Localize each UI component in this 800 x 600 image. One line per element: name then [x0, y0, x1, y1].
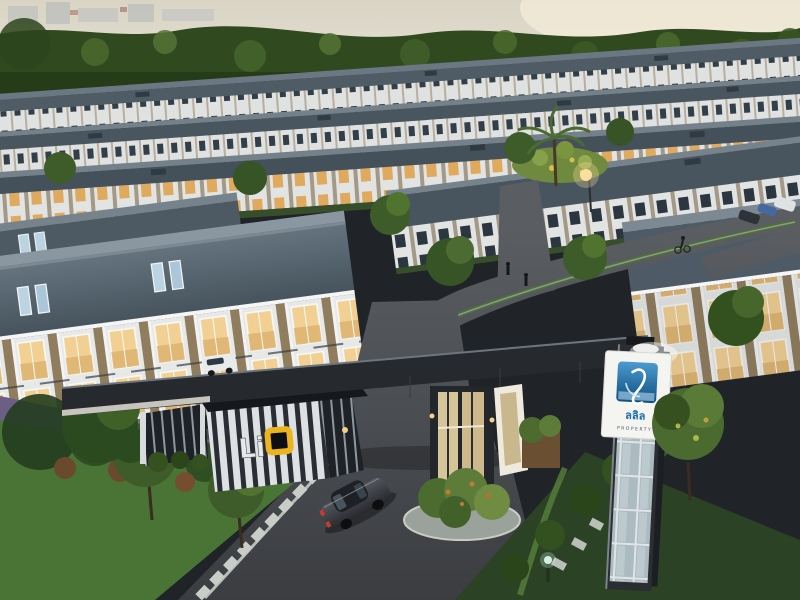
- pillar-lamp: [490, 418, 495, 423]
- rendering-canvas: Li: [0, 0, 800, 600]
- pylon-glass-panels: [610, 431, 656, 583]
- pylon-logo-text: ลลิล: [625, 409, 646, 423]
- red-shrub: [175, 472, 195, 492]
- red-shrub: [54, 457, 76, 479]
- lio-o-mark-icon: [267, 429, 291, 453]
- lio-brand-text: Li: [237, 432, 266, 465]
- village-rendering: Li: [0, 0, 800, 600]
- guardhouse-lamp: [342, 427, 348, 433]
- pillar-lamp: [430, 414, 435, 419]
- gate-side-wall: [140, 403, 208, 472]
- palm-trunk: [554, 136, 556, 186]
